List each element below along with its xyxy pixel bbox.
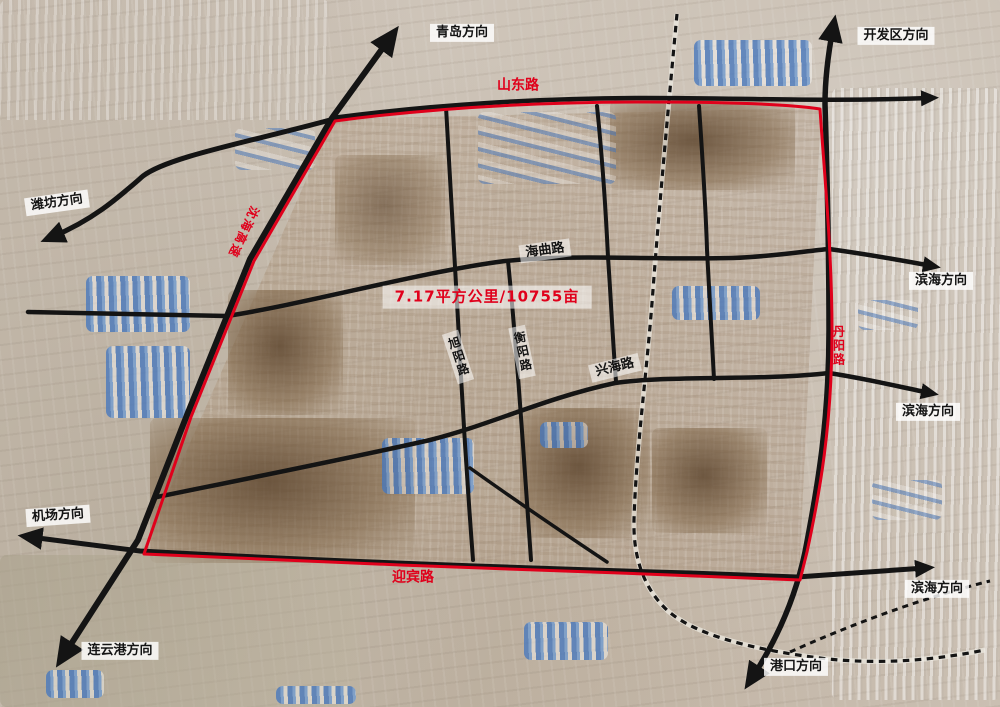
road-inner-south-diagonal [470,468,607,562]
label-binhai-direction-bottom: 滨海方向 [905,580,969,598]
label-danyang-road: 丹阳路 [830,320,847,372]
road-inner-north-1 [597,106,616,381]
label-gangkou-direction: 港口方向 [764,658,828,676]
map-annotation-layer [0,0,1000,707]
label-kaifaqu-direction: 开发区方向 [857,27,934,45]
label-yingbin-road: 迎宾路 [392,569,434,587]
railway-line [634,14,985,661]
road-weifang-connector [52,120,330,237]
label-binhai-direction-top: 滨海方向 [909,272,973,290]
road-yingbin [30,537,925,577]
label-lianyungang-direction: 连云港方向 [81,642,158,660]
label-binhai-direction-mid: 滨海方向 [896,403,960,421]
label-shandong-road: 山东路 [497,77,539,95]
planning-area-stat: 7.17平方公里/10755亩 [383,286,592,309]
railway-underlay [634,14,985,661]
road-xinghai [157,373,930,497]
satellite-map: 青岛方向 开发区方向 潍坊方向 滨海方向 滨海方向 滨海方向 机场方向 连云港方… [0,0,1000,707]
road-inner-north-2 [699,106,714,379]
label-qingdao-direction: 青岛方向 [430,24,494,42]
planning-boundary [144,102,832,580]
